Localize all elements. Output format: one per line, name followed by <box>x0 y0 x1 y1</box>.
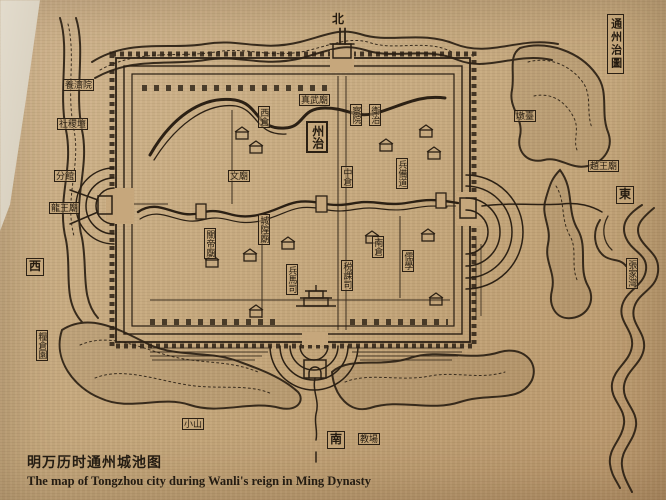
map-label-shuikesi: 税課司 <box>341 260 353 291</box>
map-label-ruxue: 儒學 <box>402 250 414 272</box>
map-label-title-cartouche: 通州治圖 <box>607 14 624 74</box>
map-label-bingbeidao: 兵備道 <box>396 158 408 189</box>
map-label-weizhi: 衛治 <box>369 104 381 126</box>
map-label-xiaoshan: 小山 <box>182 418 204 430</box>
map-label-zhongcang: 中倉 <box>341 166 353 188</box>
map-label-bingmasi: 兵馬司 <box>286 264 298 295</box>
outer-terrain <box>60 18 659 492</box>
gate-gaps <box>106 50 484 345</box>
city-buildings <box>205 125 443 317</box>
caption-chinese: 明万历时通州城池图 <box>27 452 371 472</box>
map-label-guandimiao: 關帝廟 <box>204 228 216 259</box>
map-label-liangcangyuan: 糧倉園 <box>36 330 48 361</box>
map-label-jiaochang: 教場 <box>358 433 380 445</box>
woodcut-map-drawing <box>0 0 666 500</box>
caption-block: 明万历时通州城池图 The map of Tongzhou city durin… <box>27 452 371 489</box>
map-label-chayuan: 察院 <box>350 104 362 126</box>
map-label-zhouzhi: 州治 <box>306 121 328 153</box>
caption-english: The map of Tongzhou city during Wanli's … <box>27 474 371 489</box>
museum-photo: 北通州治圖東西南教場養濟院社稷壇分館龍王廟糧倉園小山真武廟州治察院衛治西倉中倉兵… <box>0 0 666 500</box>
gate-tower-icon <box>296 285 336 306</box>
map-label-compass-west: 西 <box>26 258 44 276</box>
map-label-zhangjiawan: 張家灣 <box>626 258 638 289</box>
map-label-xicang: 西倉 <box>258 106 270 128</box>
map-label-compass-north: 北 <box>330 12 346 28</box>
map-label-wenmiao: 文廟 <box>228 170 250 182</box>
map-label-duntai: 墩臺 <box>514 110 536 122</box>
map-label-shejitan: 社稷壇 <box>57 118 88 130</box>
map-label-chenghuangmiao: 城隍廟 <box>258 214 270 245</box>
inner-river <box>138 97 458 222</box>
map-label-longwangmiao: 龍王廟 <box>49 202 80 214</box>
map-label-fenguan: 分館 <box>54 170 76 182</box>
map-label-compass-east: 東 <box>616 186 634 204</box>
map-label-zhaowangmiao: 趙王廟 <box>588 160 619 172</box>
map-label-nancang: 南倉 <box>372 236 384 258</box>
map-label-yangjiyuan: 養濟院 <box>63 79 94 91</box>
map-label-zhenwumiao: 真武廟 <box>299 94 330 106</box>
map-label-compass-south: 南 <box>327 431 345 449</box>
